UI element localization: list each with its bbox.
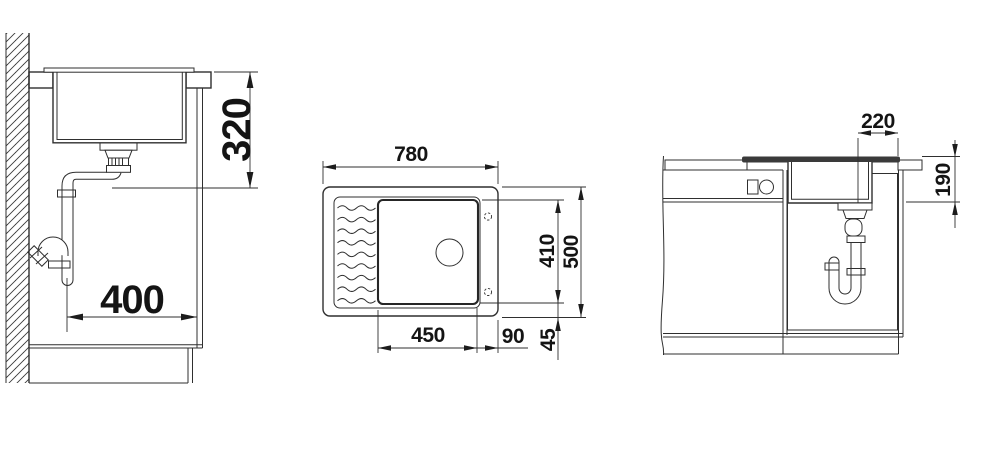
dimension-400: 400: [67, 278, 197, 332]
sink-bowl-section: [44, 68, 194, 143]
dim-780-label: 780: [394, 143, 428, 166]
top-view: 780 500 410 45: [323, 143, 586, 360]
dimension-320: 320: [214, 72, 259, 188]
dim-400-label: 400: [100, 278, 164, 322]
trap-elbow: [845, 219, 862, 236]
trap-nut-lower: [847, 269, 865, 276]
sink-installation-drawing: 320 400: [0, 0, 982, 471]
sink-rim-front: [742, 157, 900, 163]
dim-45-label: 45: [537, 328, 560, 351]
dim-410-label: 410: [536, 234, 559, 268]
dim-450-label: 450: [411, 324, 445, 347]
appliance-knob-symbol: [760, 180, 774, 194]
drain-and-siphon: [28, 143, 137, 286]
sink-rim-profile: [44, 68, 194, 72]
dimension-90: 90: [485, 325, 524, 351]
technical-drawing-page: 320 400: [0, 0, 982, 471]
appliance-switch-symbol: [748, 180, 759, 194]
dim-190-label: 190: [932, 163, 955, 197]
trap-nut-left: [825, 263, 839, 270]
dim-320-label: 320: [215, 98, 259, 162]
dimension-780: 780: [323, 143, 498, 184]
wall-section: [6, 33, 29, 383]
siphon-nut-lower: [49, 261, 71, 268]
dimension-190: 190: [906, 140, 960, 228]
dim-90-label: 90: [502, 325, 525, 348]
cabinet-break-line: [661, 156, 664, 355]
front-bowl: [788, 162, 872, 203]
dimension-45: 45: [537, 318, 561, 351]
dim-220-label: 220: [861, 110, 895, 133]
front-drain-and-trap: [825, 203, 872, 304]
dim-500-label: 500: [560, 235, 583, 269]
trap-nut-upper: [847, 236, 865, 243]
side-section-view: 320 400: [6, 33, 259, 383]
front-section-view: 220 190: [661, 110, 960, 355]
